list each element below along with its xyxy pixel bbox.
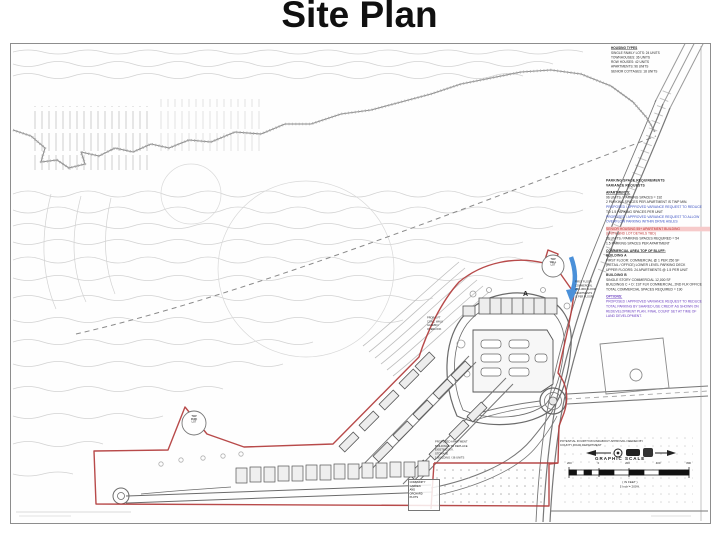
township-well-badge-label: TWP WELL LOT <box>541 258 621 285</box>
building-a-label: A <box>523 291 528 298</box>
gazebo-walk-note: PROP. 6 FT CONC. WALK GAZEBO / OVERLOOK <box>427 316 537 362</box>
housing-types-note: HOUSING TYPES SINGLE FAMILY LOTS: 24 UNI… <box>611 46 711 115</box>
page-title: Site Plan <box>0 0 719 36</box>
scale-tick-labels: 200 0 200 400 800 <box>567 462 691 465</box>
site-plan-sheet: HOUSING TYPES SINGLE FAMILY LOTS: 24 UNI… <box>10 43 711 524</box>
apartment-replacement-note: PROPOSED APARTMENT BUILDINGS TO REPLACE … <box>435 440 575 498</box>
townhouse-strip <box>113 452 433 504</box>
scale-in-feet: ( IN FEET ) 1 Inch = 200 ft. <box>609 480 711 503</box>
township-park-badge-label: TWP PARK LOT <box>182 415 262 442</box>
presentation-slide: Site Plan <box>0 0 719 534</box>
community-garden-box: COMMUNITY GARDEN AND ORCHARD PLOTS <box>408 479 440 511</box>
mixed-use-note: FIRST FLOOR COMMERCIAL 2ND-3RD FLOOR APA… <box>575 280 695 338</box>
